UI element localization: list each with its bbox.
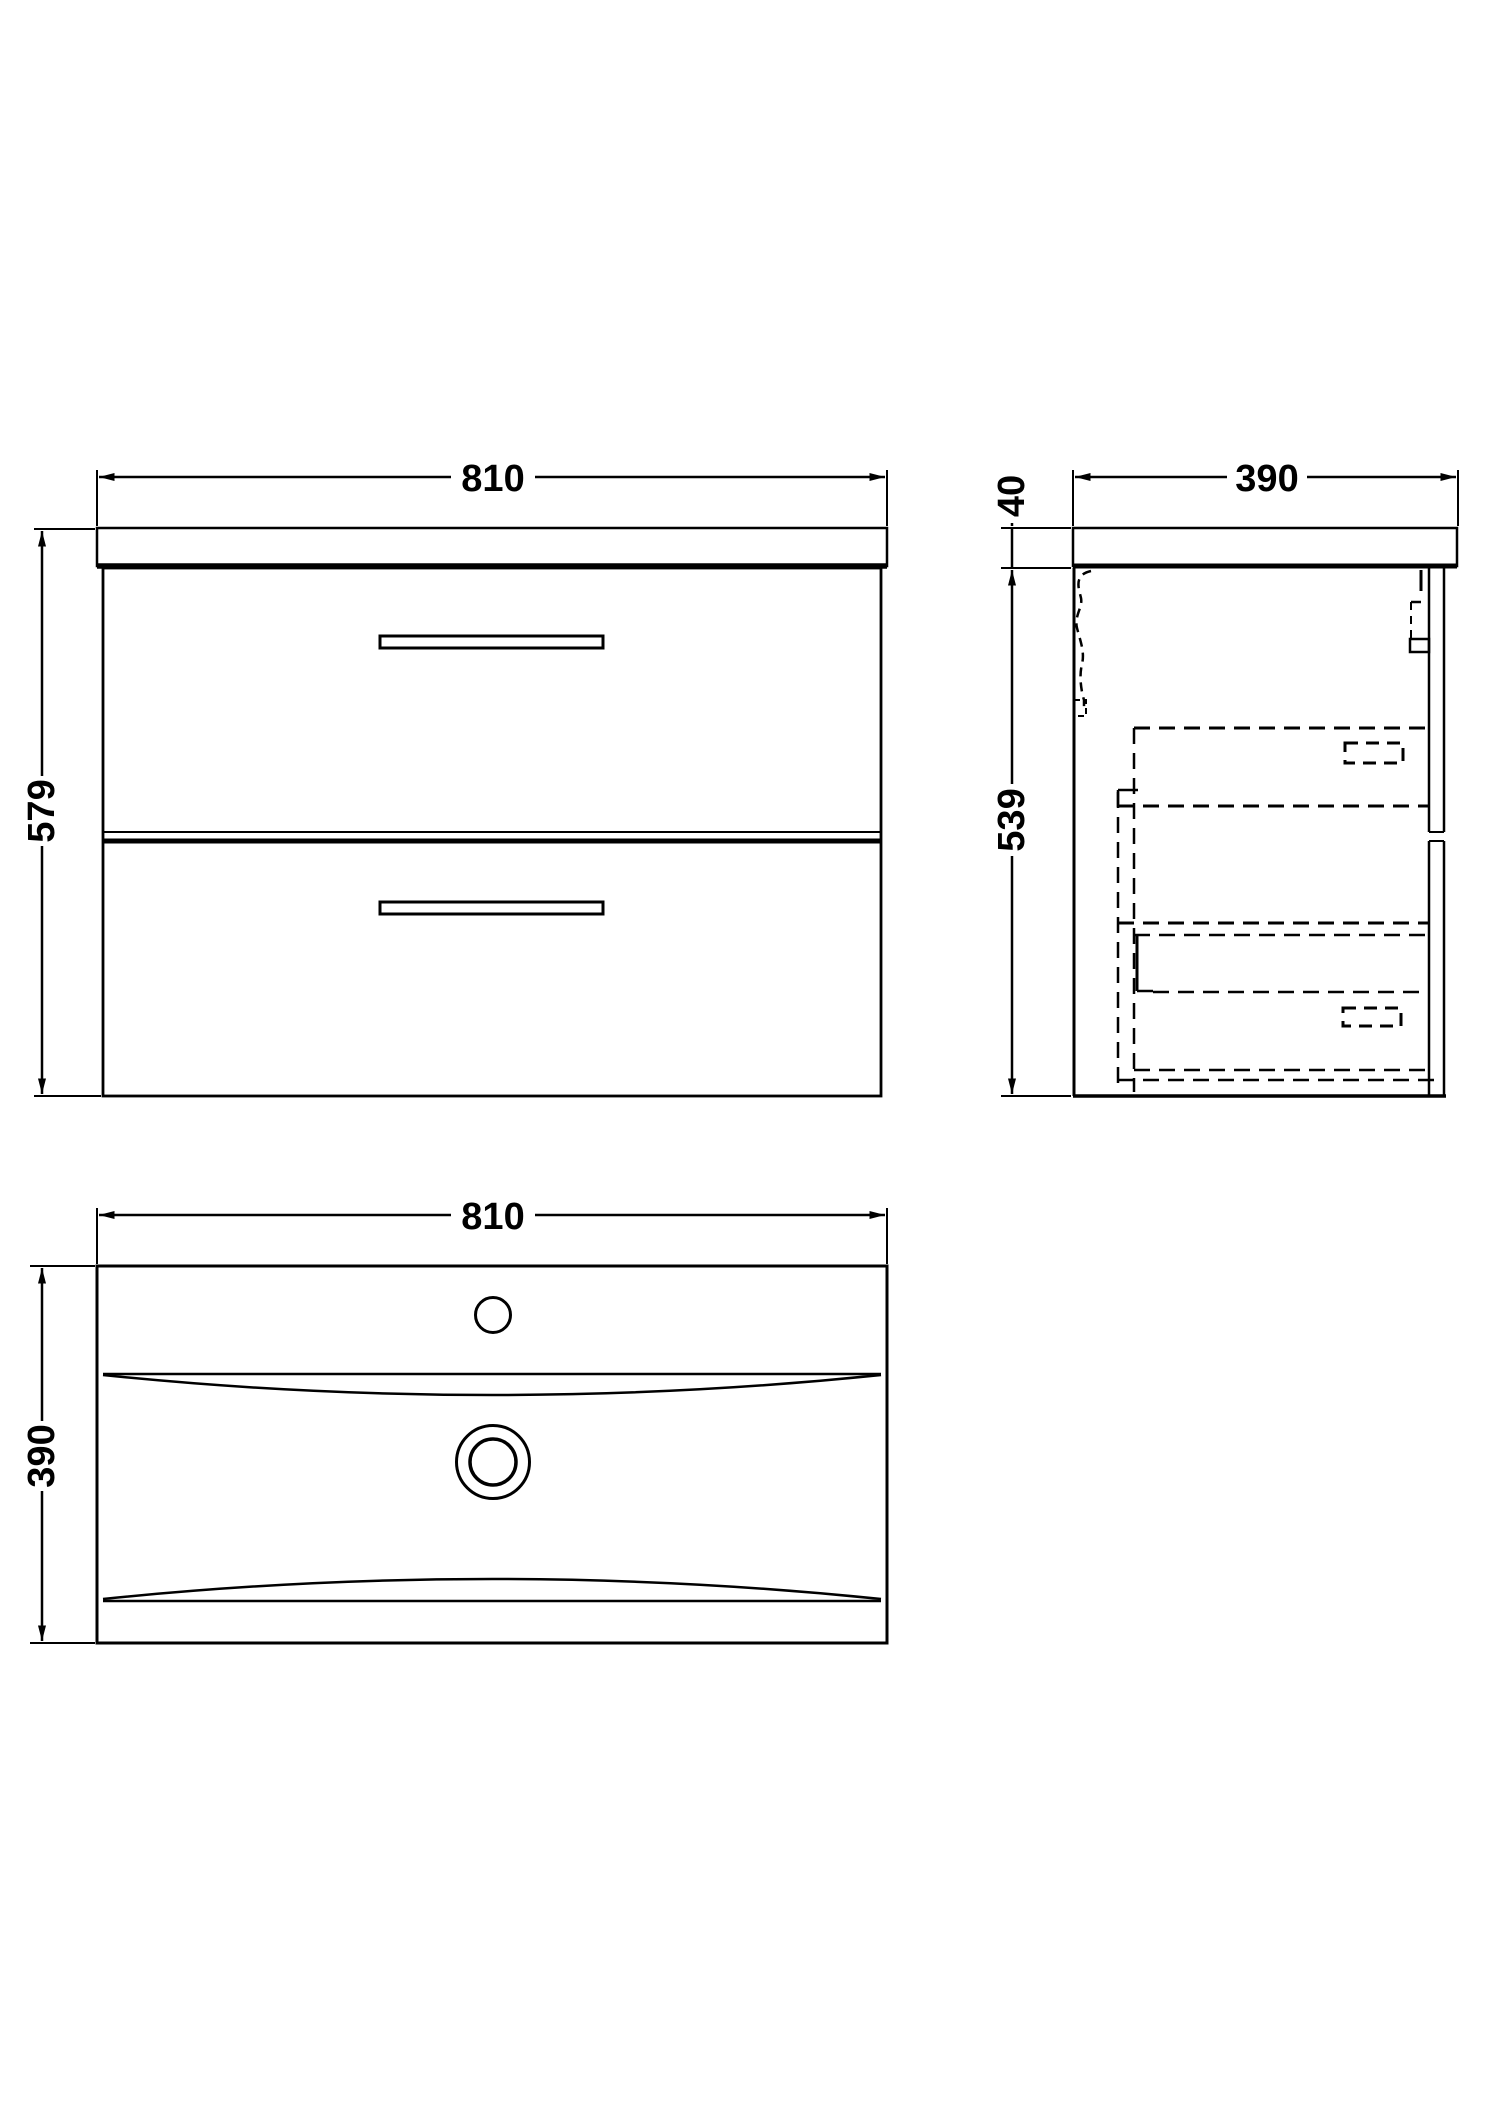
basin-inner-curve-bottom (103, 1579, 881, 1599)
basin-outline (97, 1266, 887, 1643)
front-width-dimension: 810 (97, 458, 887, 526)
drain-inner (470, 1439, 516, 1485)
plan-depth-label: 390 (21, 1424, 63, 1487)
side-worktop (1073, 528, 1457, 566)
plan-depth-dimension: 390 (21, 1266, 95, 1643)
basin-inner-curve-top (103, 1375, 881, 1395)
waste-pipe-hidden (1074, 571, 1091, 716)
front-worktop (97, 528, 887, 566)
plan-width-dimension: 810 (97, 1196, 887, 1264)
front-view: 810 579 (21, 458, 887, 1096)
front-height-label: 579 (21, 779, 63, 842)
front-drawer2-handle (380, 902, 603, 914)
front-height-dimension: 579 (21, 529, 101, 1096)
wall-bracket-detail (1410, 570, 1429, 652)
side-drawer-fronts (1429, 568, 1444, 1096)
side-depth-label: 390 (1235, 458, 1298, 500)
hidden-drawer-boxes (1118, 728, 1440, 1092)
tap-hole (476, 1298, 511, 1333)
waste-pipe-path (1076, 571, 1091, 712)
front-width-label: 810 (461, 458, 524, 500)
technical-drawing-page: 810 579 (0, 0, 1500, 2123)
side-height-dimensions: 40 539 (991, 469, 1071, 1096)
front-drawer1-handle (380, 636, 603, 648)
plan-view: 810 390 (21, 1196, 887, 1643)
drain-outer (457, 1426, 530, 1499)
plan-width-label: 810 (461, 1196, 524, 1238)
bracket-block (1410, 639, 1429, 652)
side-drawer2-handle-hidden (1343, 1008, 1401, 1026)
vanity-dimension-drawing: 810 579 (0, 0, 1500, 2123)
side-worktop-thickness-label: 40 (991, 475, 1033, 517)
side-view: 390 40 539 (991, 458, 1458, 1096)
side-drawer1-handle-hidden (1345, 743, 1403, 763)
side-depth-dimension: 390 (1073, 458, 1458, 526)
side-cabinet-height-label: 539 (991, 788, 1033, 851)
